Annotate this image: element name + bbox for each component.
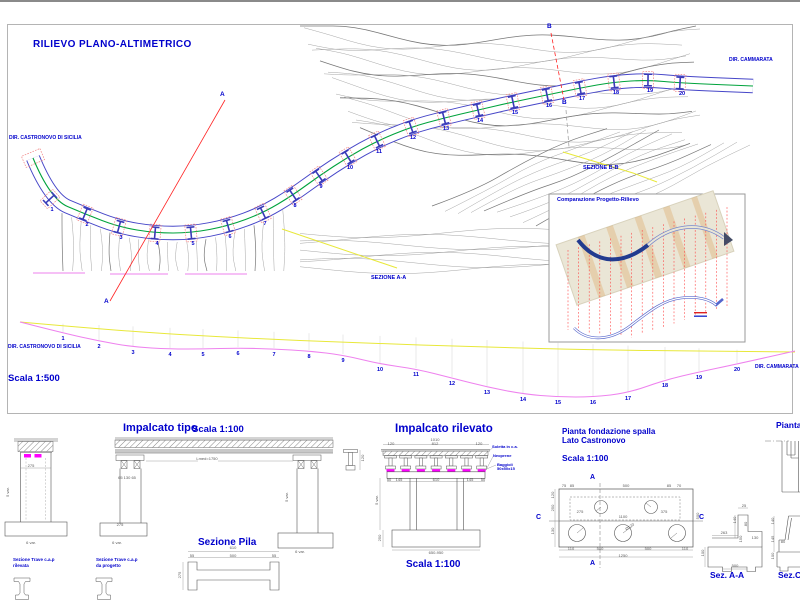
dim-label: 6 var. — [26, 541, 36, 545]
dim-label: 85 — [570, 484, 574, 488]
legend-red-line — [694, 312, 707, 313]
dim-label: 500 — [597, 547, 604, 551]
impalcato-tipo-title: Impalcato tipo — [123, 423, 198, 434]
dim-label: 110 — [682, 547, 688, 551]
fondazione-marker-a-bottom: A — [590, 560, 595, 567]
dim-label: 120 — [476, 442, 483, 446]
dim-label: 140 — [733, 517, 737, 524]
dim-label: 100 — [701, 550, 705, 557]
number-label: 14 — [477, 119, 483, 125]
dim-label: 25 — [742, 504, 746, 508]
dim-label: 275 — [117, 523, 124, 527]
fondazione-title-2: Lato Castronovo — [562, 437, 626, 445]
number-label: 5 — [201, 353, 204, 359]
number-label: 8 — [307, 355, 310, 361]
dim-label: 120 — [361, 455, 365, 462]
dim-label: 275 — [577, 510, 584, 514]
dim-label: 110 — [568, 547, 574, 551]
dim-label: 145 — [771, 536, 775, 543]
dim-label: 65 130 65 — [118, 476, 136, 480]
dim-label: 1100 — [619, 515, 628, 519]
dim-label: Lmed=1750 — [196, 457, 217, 461]
number-label: 9 — [341, 359, 344, 365]
dim-label: 500 — [696, 513, 700, 520]
number-label: 11 — [376, 150, 382, 156]
comparison-inset — [549, 191, 745, 342]
number-label: 15 — [555, 401, 561, 407]
dim-label: 500 — [623, 484, 630, 488]
dim-label: 263 — [721, 531, 728, 535]
fondazione-marker-a-top: A — [590, 474, 595, 481]
direction-label-castronovo-profile: DIR. CASTRONOVO DI SICILIA — [8, 345, 81, 350]
number-label: 16 — [546, 104, 552, 110]
dim-label: 500 — [645, 547, 652, 551]
neoprene-label: Neoprene — [493, 454, 511, 458]
number-label: 10 — [377, 368, 383, 374]
number-label: 10 — [347, 166, 353, 172]
sez-c-title: Sez.C — [778, 571, 800, 580]
pianta-title: Pianta — [776, 421, 800, 430]
number-label: 13 — [443, 127, 449, 133]
dim-label: 150 — [739, 536, 743, 543]
number-label: 15 — [512, 111, 518, 117]
dim-label: 650-950 — [429, 551, 444, 555]
trave-progetto-label-2: da progetto — [96, 564, 121, 569]
dim-label: 55 — [272, 554, 276, 558]
number-label: 3 — [131, 351, 134, 357]
sez-aa-title: Sez. A-A — [710, 571, 744, 580]
dim-label: 5 var. — [6, 487, 10, 497]
number-label: 17 — [579, 97, 585, 103]
dim-label: 6 var. — [295, 550, 305, 554]
dim-label: 5 var. — [285, 492, 289, 502]
number-label: 4 — [155, 242, 158, 248]
number-label: 19 — [696, 376, 702, 382]
dim-label: 55 — [190, 554, 194, 558]
section-marker-a-top: A — [220, 92, 225, 99]
direction-label-castronovo-plan: DIR. CASTRONOVO DI SICILIA — [9, 136, 82, 141]
number-label: 4 — [168, 353, 171, 359]
soletta-label: Soletta in c.a. — [492, 445, 518, 449]
dim-label: 70 — [677, 484, 681, 488]
section-marker-b-bottom: B — [562, 100, 567, 107]
number-label: 11 — [413, 373, 419, 379]
trave-rilevata-label-1: Sezione Trave c.a.p — [13, 558, 55, 563]
number-label: 14 — [520, 398, 526, 404]
number-label: 19 — [647, 89, 653, 95]
sez-c-drawing — [774, 516, 800, 571]
number-label: 12 — [410, 136, 416, 142]
dim-label: 500 — [732, 564, 739, 568]
dim-label: 5 var. — [375, 495, 379, 505]
number-label: 3 — [119, 236, 122, 242]
impalcato-rilevato-section — [380, 445, 496, 551]
dim-label: 50 — [481, 478, 485, 482]
section-aa-label: SEZIONE A-A — [371, 276, 406, 282]
dim-label: 375 — [661, 510, 668, 514]
dim-label: 145 — [396, 478, 403, 482]
number-label: 12 — [449, 382, 455, 388]
dim-label: 75 — [562, 484, 566, 488]
dim-label: 80 — [744, 522, 748, 526]
number-label: 5 — [191, 242, 194, 248]
pier-front-view — [5, 439, 67, 536]
number-label: 2 — [97, 345, 100, 351]
dim-label: 100 — [771, 553, 775, 560]
dim-label: 812 — [432, 442, 439, 446]
dim-label: 140 — [771, 518, 775, 525]
number-label: 18 — [613, 91, 619, 97]
number-label: 8 — [293, 204, 296, 210]
number-label: 7 — [272, 353, 275, 359]
dim-label: 130 — [551, 528, 555, 535]
sezione-pila-title: Sezione Pila — [198, 538, 256, 548]
span-elevation — [100, 438, 360, 548]
dim-label: 250 — [551, 505, 555, 512]
fondazione-marker-c-left: C — [536, 514, 541, 521]
trave-progetto-label-1: Sezione Trave c.a.p — [96, 558, 138, 563]
dim-label: 275 — [178, 572, 182, 579]
impalcato-rilevato-title: Impalcato rilevato — [395, 424, 493, 436]
direction-label-cammarata-profile: DIR. CAMMARATA — [755, 365, 799, 370]
number-label: 2 — [85, 223, 88, 229]
plan-scale-label: Scala 1:500 — [8, 374, 60, 384]
dim-label: 1250 — [619, 554, 628, 558]
cad-drawing — [0, 0, 800, 600]
number-label: 1 — [50, 208, 53, 214]
number-label: 13 — [484, 391, 490, 397]
number-label: 18 — [662, 384, 668, 390]
number-label: 9 — [319, 185, 322, 191]
dim-label: 250 — [378, 535, 382, 542]
dim-label: 6 var. — [112, 541, 122, 545]
number-label: 6 — [236, 352, 239, 358]
number-label: 6 — [228, 235, 231, 241]
section-bb-label: SEZIONE B-B — [583, 166, 618, 172]
direction-label-cammarata-plan: DIR. CAMMARATA — [729, 58, 773, 63]
number-label: 16 — [590, 401, 596, 407]
trave-rilevata-label-2: rilevata — [13, 564, 29, 569]
dim-label: 130 — [752, 536, 759, 540]
section-marker-a-bottom: A — [104, 299, 109, 306]
section-marker-b-top: B — [547, 24, 552, 31]
fondazione-title-1: Pianta fondazione spalla — [562, 428, 655, 436]
impalcato-tipo-scale: Scala 1:100 — [192, 425, 244, 435]
dim-label: 120 — [388, 442, 395, 446]
number-label: 20 — [679, 92, 685, 98]
number-label: 17 — [625, 397, 631, 403]
dim-label: 610 — [230, 546, 237, 550]
dim-label: 500 — [230, 554, 237, 558]
dim-label: 50 — [387, 478, 391, 482]
pianta-partial — [765, 441, 800, 492]
dim-label: 80 — [781, 540, 785, 544]
trave-sections — [14, 578, 112, 600]
impalcato-rilevato-scale: Scala 1:100 — [406, 560, 461, 570]
number-label: 7 — [263, 222, 266, 228]
number-label: 20 — [734, 368, 740, 374]
sheet-title: RILIEVO PLANO-ALTIMETRICO — [33, 40, 192, 50]
fondazione-scale: Scala 1:100 — [562, 454, 608, 463]
baggioli-label-2: 50x50x15 — [497, 467, 515, 471]
number-label: 1 — [61, 337, 64, 343]
dim-label: 120 — [551, 492, 555, 499]
dim-label: 275 — [28, 464, 35, 468]
inset-title: Comparazione Progetto-Rilievo — [557, 198, 639, 204]
dim-label: 85 — [667, 484, 671, 488]
legend-blue-line — [694, 316, 707, 317]
dim-label: 610 — [433, 478, 440, 482]
dim-label: 145 — [467, 478, 474, 482]
